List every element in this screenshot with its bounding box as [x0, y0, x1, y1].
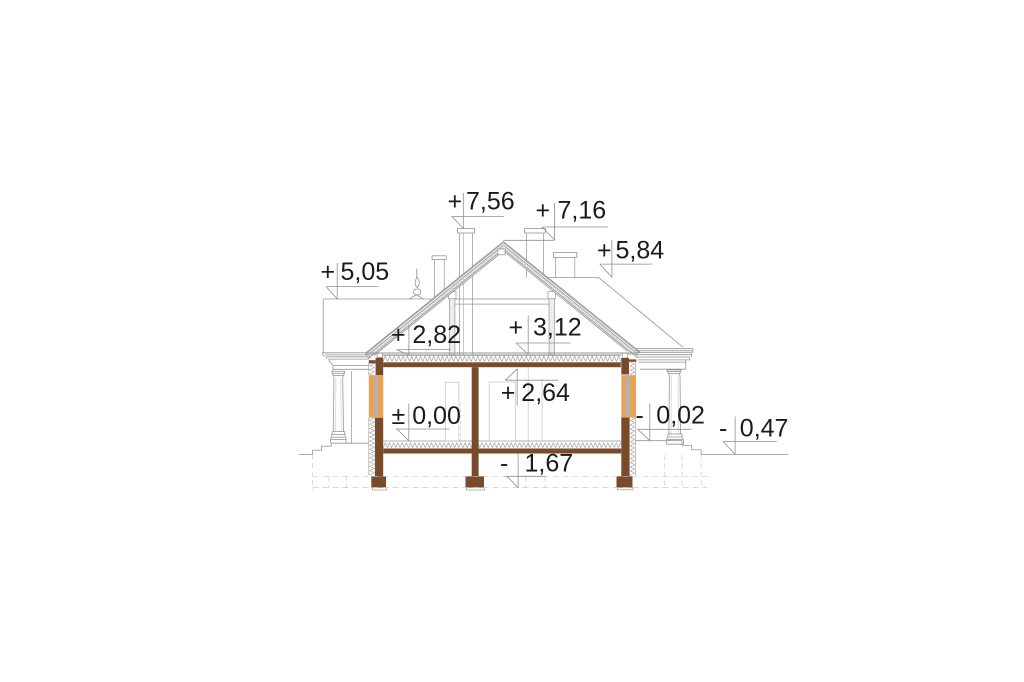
svg-text:+: +	[536, 197, 551, 225]
svg-text:1,67: 1,67	[525, 450, 574, 478]
svg-text:-: -	[719, 415, 727, 443]
svg-text:+: +	[597, 236, 612, 264]
svg-text:±: ±	[392, 402, 406, 430]
svg-text:7,56: 7,56	[466, 188, 515, 216]
svg-text:-: -	[636, 402, 644, 430]
svg-text:5,84: 5,84	[616, 236, 665, 264]
svg-text:0,00: 0,00	[412, 402, 461, 430]
svg-text:-: -	[500, 450, 508, 478]
svg-text:+: +	[391, 321, 406, 349]
svg-text:3,12: 3,12	[533, 314, 582, 342]
svg-text:2,82: 2,82	[412, 321, 461, 349]
svg-text:5,05: 5,05	[341, 258, 390, 286]
svg-text:+: +	[509, 314, 524, 342]
svg-text:0,02: 0,02	[656, 402, 705, 430]
svg-text:7,16: 7,16	[558, 197, 607, 225]
svg-text:+: +	[321, 258, 336, 286]
svg-text:+: +	[501, 379, 516, 407]
svg-text:2,64: 2,64	[521, 379, 570, 407]
svg-text:+: +	[448, 188, 463, 216]
svg-text:0,47: 0,47	[740, 415, 789, 443]
